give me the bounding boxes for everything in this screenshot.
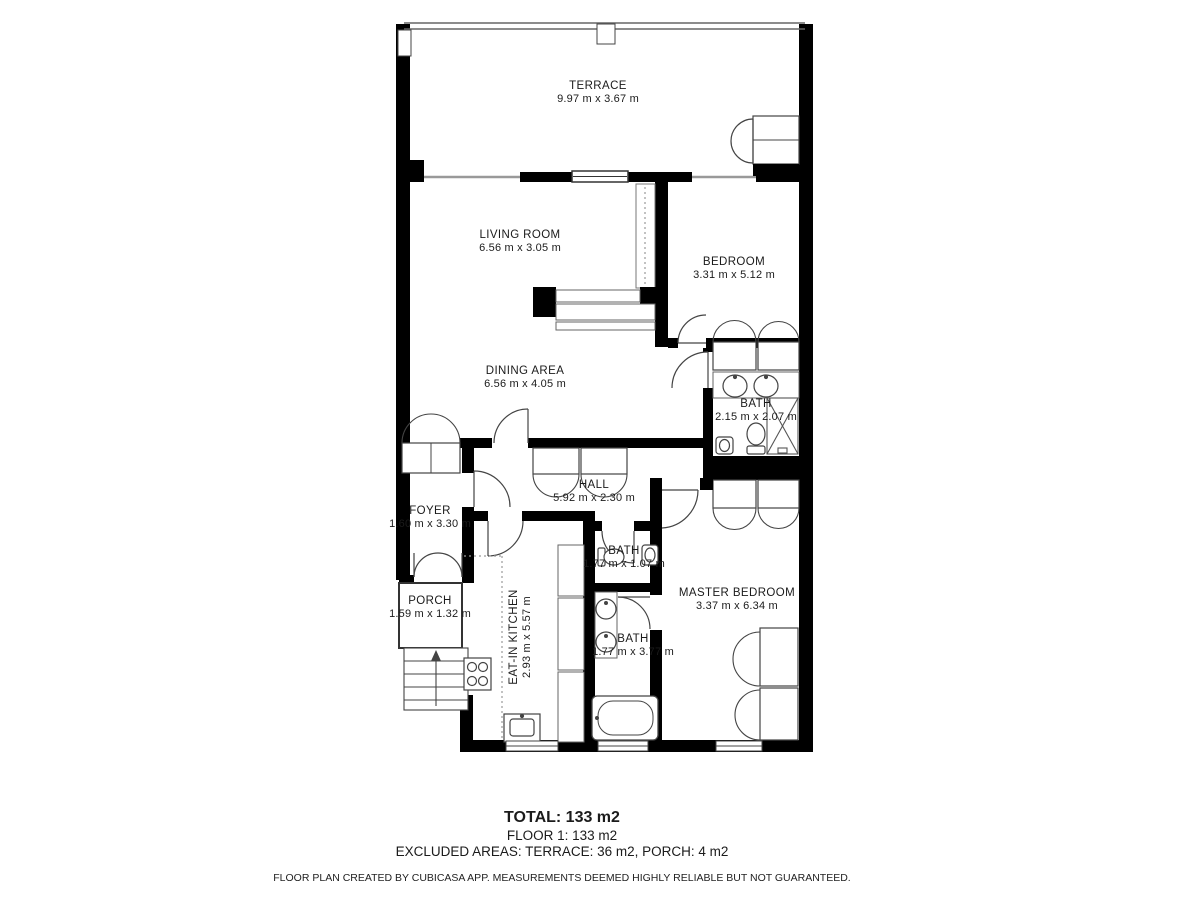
floorplan-drawing [0,0,1200,900]
room-name: HALL [553,478,635,492]
window-framed [572,171,628,182]
kitchen-sink-icon [504,714,540,742]
room-name: BEDROOM [693,255,775,269]
room-name: EAT-IN KITCHEN [507,589,521,684]
stairs [404,648,468,710]
room-name: LIVING ROOM [479,228,561,242]
counter-units [558,545,584,742]
room-label-bath-master: BATH 1.77 m x 3.77 m [592,632,674,660]
bidet-icon [716,437,733,454]
terrace-post [597,24,615,44]
room-dims: 9.97 m x 3.67 m [557,93,639,107]
master-side-closets [733,628,798,740]
room-dims: 6.56 m x 4.05 m [484,378,566,392]
disclaimer: FLOOR PLAN CREATED BY CUBICASA APP. MEAS… [0,872,1124,884]
room-dims: 1.77 m x 1.07 m [583,558,665,572]
room-label-living-room: LIVING ROOM 6.56 m x 3.05 m [479,228,561,256]
bedroom-closets [713,342,799,370]
terrace-wall [408,171,803,182]
toilet-icon [747,423,765,454]
room-label-bath-upper: BATH 2.15 m x 2.07 m [715,397,797,425]
bathtub-icon [592,696,658,740]
floor-area: FLOOR 1: 133 m2 [0,828,1124,843]
total-area: TOTAL: 133 m2 [0,809,1124,827]
room-name: BATH [583,544,665,558]
room-dims: 3.37 m x 6.34 m [679,600,795,614]
dining-closet [402,414,460,473]
room-label-foyer: FOYER 1.60 m x 3.30 m [389,504,471,532]
bath-door [672,352,708,388]
room-label-eat-in-kitchen: EAT-IN KITCHEN 2.93 m x 5.57 m [507,589,535,684]
excluded-areas: EXCLUDED AREAS: TERRACE: 36 m2, PORCH: 4… [0,844,1124,859]
room-name: TERRACE [557,79,639,93]
bedroom-door [678,315,706,343]
room-label-hall: HALL 5.92 m x 2.30 m [553,478,635,506]
room-name: FOYER [389,504,471,518]
room-name: BATH [592,632,674,646]
room-dims: 3.31 m x 5.12 m [693,269,775,283]
room-dims: 1.77 m x 3.77 m [592,646,674,660]
terrace-closet [731,116,799,176]
master-top-closets [713,480,799,530]
terrace-pillar [398,30,411,56]
room-label-bedroom: BEDROOM 3.31 m x 5.12 m [693,255,775,283]
room-label-porch: PORCH 1.59 m x 1.32 m [389,594,471,622]
room-name: MASTER BEDROOM [679,586,795,600]
room-dims: 1.60 m x 3.30 m [389,518,471,532]
room-dims: 6.56 m x 3.05 m [479,242,561,256]
room-name: PORCH [389,594,471,608]
bottom-windows [506,741,762,751]
room-dims: 2.93 m x 5.57 m [521,589,535,684]
dining-wall [460,409,713,448]
room-dims: 1.59 m x 1.32 m [389,608,471,622]
room-dims: 5.92 m x 2.30 m [553,492,635,506]
media-half-wall [533,287,655,330]
room-label-bath-small: BATH 1.77 m x 1.07 m [583,544,665,572]
master-entry [650,478,713,752]
master-bath [592,592,658,740]
room-name: DINING AREA [484,364,566,378]
room-name: BATH [715,397,797,411]
stove-icon [464,658,491,690]
room-label-dining-area: DINING AREA 6.56 m x 4.05 m [484,364,566,392]
room-label-master-bedroom: MASTER BEDROOM 3.37 m x 6.34 m [679,586,795,614]
room-dims: 2.15 m x 2.07 m [715,411,797,425]
summary-block: TOTAL: 133 m2 FLOOR 1: 133 m2 EXCLUDED A… [0,809,1124,884]
floorplan-page: TERRACE 9.97 m x 3.67 m LIVING ROOM 6.56… [0,0,1200,900]
room-label-terrace: TERRACE 9.97 m x 3.67 m [557,79,639,107]
